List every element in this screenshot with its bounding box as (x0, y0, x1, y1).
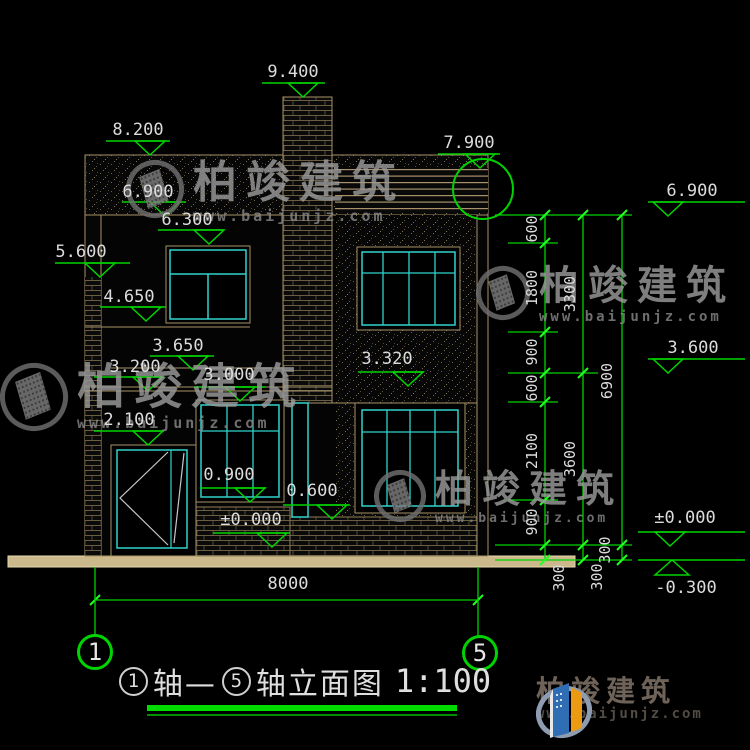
level-label-0900: 0.900 (194, 466, 264, 485)
chain-dim-900b: 900 (524, 487, 540, 557)
title-underline (147, 705, 457, 716)
watermark-brand: 柏竣建筑 (193, 160, 405, 206)
overall-width-dimension: 8000 (253, 575, 323, 594)
axis-bubble-1: 1 (78, 635, 112, 669)
title-scale: 1:100 (395, 662, 491, 700)
chain-dim-2100: 2100 (524, 416, 540, 486)
entrance-door (111, 445, 196, 556)
title-axis-bubble-5: 5 (222, 667, 251, 696)
ground-slab (8, 556, 575, 567)
level-label-0000-right: ±0.000 (645, 509, 725, 528)
watermark-logo-icon (0, 353, 78, 442)
level-label-8200: 8.200 (103, 121, 173, 140)
chain-dim-300c: 300 (597, 515, 613, 585)
chain-dim-300a: 300 (551, 543, 567, 613)
level-label-3320: 3.320 (352, 350, 422, 369)
chain-dim-6900: 6900 (599, 346, 615, 416)
company-logo-icon (536, 676, 592, 742)
axis-number-1: 1 (88, 638, 102, 666)
company-logo: 柏竣建筑 www.baijunjz.com (536, 676, 703, 722)
chimney (283, 97, 332, 403)
level-label-3600-right: 3.600 (658, 339, 728, 358)
level-label-5600: 5.600 (46, 243, 116, 262)
chain-dim-3600: 3600 (562, 424, 578, 494)
chain-dim-600b: 600 (524, 353, 540, 423)
title-text-mid: 轴— (153, 659, 217, 703)
level-label-2100: 2.100 (94, 411, 164, 430)
level-label-9400: 9.400 (258, 63, 328, 82)
title-axis-bubble-1: 1 (119, 667, 148, 696)
level-label-3650: 3.650 (143, 337, 213, 356)
level-label-0000-left: ±0.000 (211, 511, 291, 530)
level-label-7900: 7.900 (434, 134, 504, 153)
watermark-right: 柏竣建筑 www.baijunjz.com (476, 266, 735, 325)
level-label-6900-right: 6.900 (657, 182, 727, 201)
level-label-0600: 0.600 (277, 482, 347, 501)
level-label-3200: 3.200 (100, 358, 170, 377)
watermark-center: 柏竣建筑 www.baijunjz.com (374, 470, 623, 526)
watermark-url: www.baijunjz.com (193, 207, 405, 225)
watermark-logo-icon (366, 462, 434, 530)
title-text-suffix: 轴立面图 (256, 659, 384, 703)
chain-dim-3300: 3300 (562, 259, 578, 329)
chain-dim-1800: 1800 (524, 253, 540, 323)
drawing-title: 1 轴— 5 轴立面图 1:100 (138, 659, 472, 703)
level-label-m0300-right: -0.300 (646, 579, 726, 598)
level-label-6900-left: 6.900 (113, 183, 183, 202)
window-2f-right (357, 247, 460, 330)
level-label-4650: 4.650 (94, 288, 164, 307)
level-label-3000: 3.000 (194, 366, 264, 385)
level-label-6300: 6.300 (152, 211, 222, 230)
window-2f-left (166, 246, 250, 323)
